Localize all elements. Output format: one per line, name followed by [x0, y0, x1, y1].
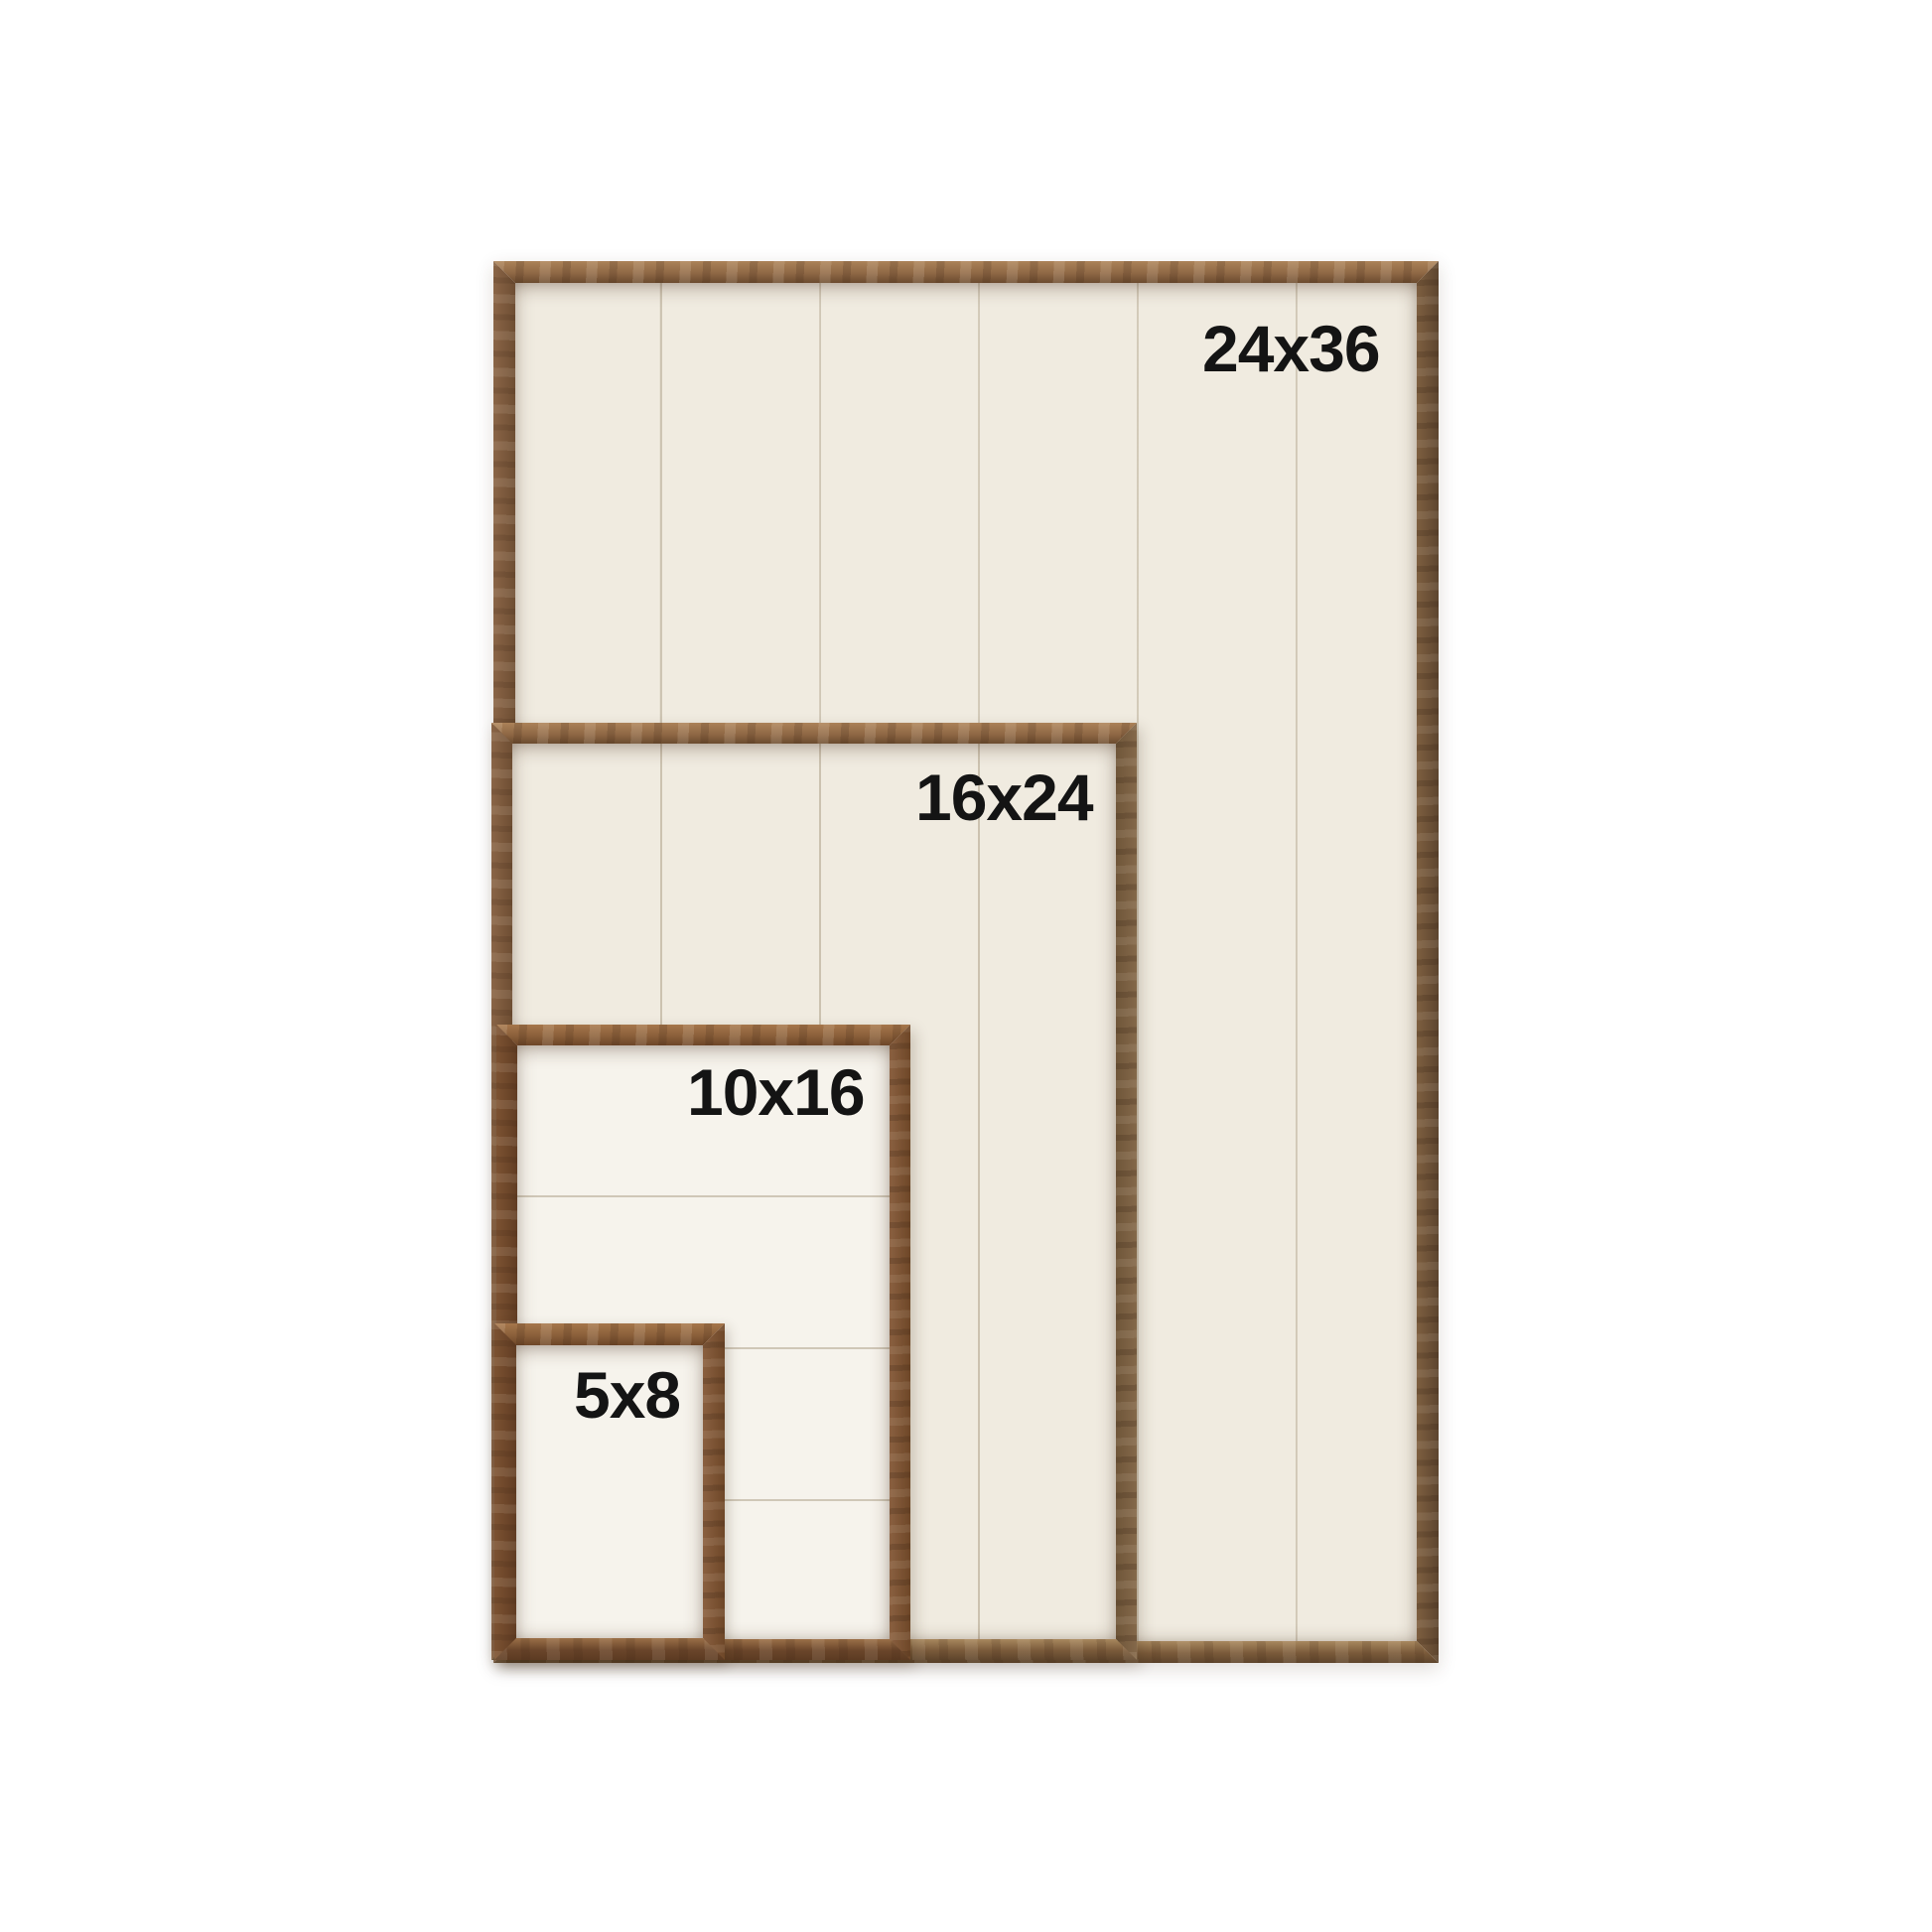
- frame-5x8-top-bar: [494, 1323, 725, 1345]
- frame-16x24-top-bar: [491, 723, 1137, 744]
- frame-size-chart-photo: 24x36 16x24 10x16 5x8: [0, 0, 1932, 1932]
- frame-5x8-right-bar: [703, 1323, 725, 1660]
- frame-24x36-top-bar: [493, 261, 1439, 283]
- frame-10x16-right-bar: [890, 1025, 910, 1660]
- size-label-5x8: 5x8: [574, 1362, 680, 1428]
- frame-5x8-left-bar: [494, 1323, 516, 1660]
- frame-16x24-right-bar: [1116, 723, 1137, 1660]
- frame-5x8-bottom-bar: [494, 1638, 725, 1660]
- size-label-16x24: 16x24: [915, 764, 1093, 830]
- frame-10x16-top-bar: [496, 1025, 910, 1045]
- size-label-24x36: 24x36: [1202, 316, 1380, 381]
- frame-24x36-right-bar: [1417, 261, 1439, 1663]
- size-label-10x16: 10x16: [687, 1059, 865, 1125]
